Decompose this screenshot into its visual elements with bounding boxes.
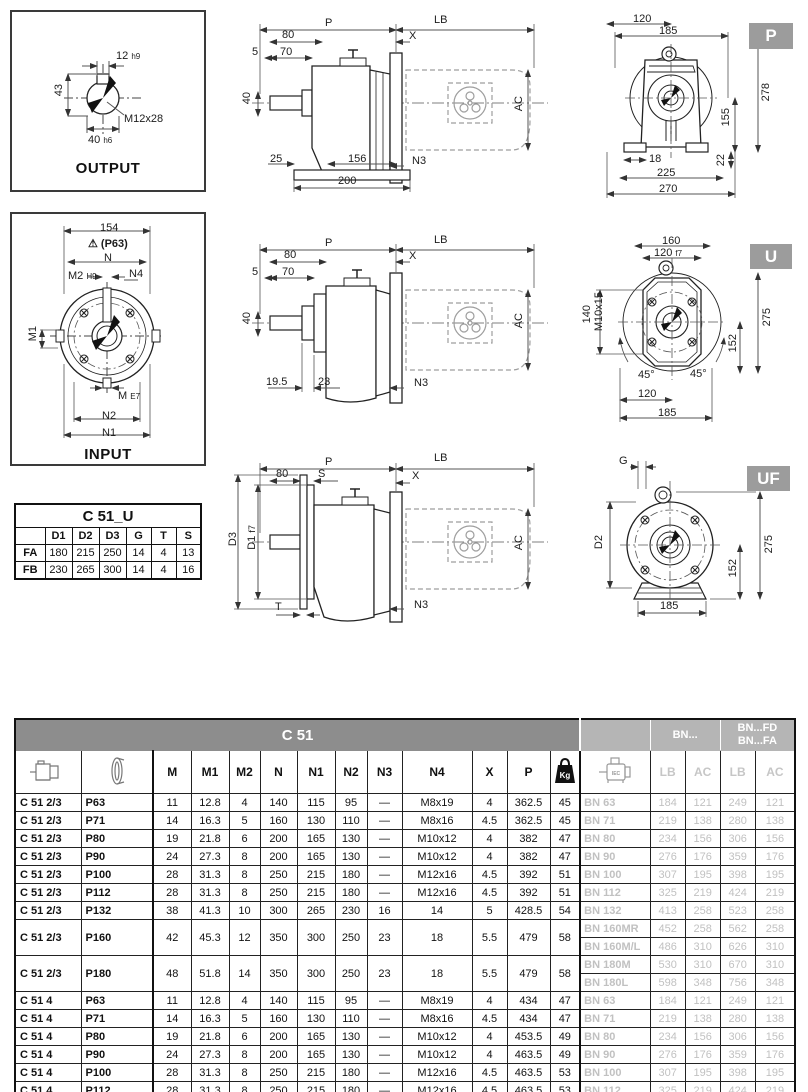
dim-p: P: [325, 238, 332, 249]
table-cell: 4: [472, 1028, 507, 1046]
table-cell: 115: [297, 794, 335, 812]
table-cell: 5: [472, 902, 507, 920]
col-header-n4: N4: [402, 751, 472, 794]
table-cell: BN 63: [580, 794, 650, 812]
table-cell: BN 100: [580, 866, 650, 884]
table-cell: M12x16: [402, 884, 472, 902]
table-cell: 110: [335, 812, 367, 830]
table-cell: 362.5: [507, 794, 550, 812]
table-cell: 306: [720, 830, 755, 848]
table-cell: 14: [402, 902, 472, 920]
table-cell: 130: [297, 812, 335, 830]
table-cell: 200: [260, 848, 297, 866]
table-cell: 49: [550, 1046, 580, 1064]
table-cell: 325: [650, 884, 685, 902]
dim-thread: M12x28: [124, 114, 163, 125]
col-header-m2: M2: [229, 751, 260, 794]
table-cell: 31.3: [191, 884, 229, 902]
table-cell: 180: [335, 1064, 367, 1082]
iec-motor-icon: IEC: [580, 751, 650, 794]
dim-80: 80: [284, 250, 296, 261]
table-cell: 130: [335, 1046, 367, 1064]
table-cell: 215: [297, 1082, 335, 1092]
table-cell: 434: [507, 1010, 550, 1028]
svg-text:IEC: IEC: [612, 771, 621, 777]
dim-140: 140: [582, 305, 593, 323]
table-cell: P80: [81, 1028, 153, 1046]
table-cell: 180: [335, 1082, 367, 1092]
table-cell: 12.8: [191, 794, 229, 812]
table-cell: 18: [402, 920, 472, 956]
output-caption: OUTPUT: [12, 160, 204, 177]
table-cell: 307: [650, 866, 685, 884]
table-cell: 258: [685, 902, 720, 920]
table-row: C 51 4P631112.8414011595—M8x19443447BN 6…: [15, 992, 795, 1010]
table-cell: 258: [755, 920, 795, 938]
table-cell: C 51 4: [15, 1064, 81, 1082]
col-header-n3: N3: [367, 751, 402, 794]
table-row: C 51 2/3P631112.8414011595—M8x194362.545…: [15, 794, 795, 812]
table-cell: C 51 2/3: [15, 866, 81, 884]
table-cell: 176: [755, 848, 795, 866]
table-cell: 424: [720, 884, 755, 902]
table-cell: 562: [720, 920, 755, 938]
table-cell: 53: [550, 1082, 580, 1092]
dim-keyway: 12 h9: [116, 51, 140, 62]
table-cell: 4.5: [472, 866, 507, 884]
table-cell: 176: [685, 1046, 720, 1064]
table-cell: 14: [229, 956, 260, 992]
table-cell: 14: [153, 812, 191, 830]
table-cell: 219: [650, 1010, 685, 1028]
table-cell: 250: [260, 1064, 297, 1082]
tab-u-version: U: [750, 244, 792, 269]
table-cell: 4.5: [472, 1082, 507, 1092]
table-cell: 138: [755, 1010, 795, 1028]
table-cell: 115: [297, 992, 335, 1010]
table-cell: 8: [229, 866, 260, 884]
dim-22: 22: [716, 154, 727, 166]
table-cell: 41.3: [191, 902, 229, 920]
warning-triangle-icon: ⚠ (P63): [88, 239, 128, 250]
catalog-page: 12 h9 43 M12x28 40 h6 OUTPUT: [0, 0, 808, 1092]
table-cell: P100: [81, 1064, 153, 1082]
table-cell: 184: [650, 992, 685, 1010]
table-cell: 300: [297, 920, 335, 956]
table-cell: 121: [755, 992, 795, 1010]
sub-header-ac2: AC: [755, 751, 795, 794]
table-cell: 200: [260, 1028, 297, 1046]
col-header: D3: [99, 528, 126, 545]
table-cell: 250: [260, 1082, 297, 1092]
table-cell: 11: [153, 794, 191, 812]
dim-g: G: [619, 456, 628, 467]
table-cell: 10: [229, 902, 260, 920]
dim-185: 185: [658, 408, 676, 419]
table-cell: 165: [297, 1028, 335, 1046]
table-cell: —: [367, 830, 402, 848]
table-cell: C 51 4: [15, 1082, 81, 1092]
table-cell: 234: [650, 830, 685, 848]
table-cell: 16: [367, 902, 402, 920]
dim-d1: D1 f7: [247, 525, 258, 550]
col-header: S: [176, 528, 201, 545]
table-cell: 16.3: [191, 1010, 229, 1028]
table-cell: 138: [685, 1010, 720, 1028]
table-cell: 180: [335, 866, 367, 884]
dim-200: 200: [338, 176, 356, 187]
dim-lb: LB: [434, 235, 447, 246]
table-cell: 280: [720, 812, 755, 830]
table-cell: BN 132: [580, 902, 650, 920]
table-row: C 51 2/3P1122831.38250215180—M12x164.539…: [15, 884, 795, 902]
table-cell: 359: [720, 1046, 755, 1064]
table-cell: 195: [685, 866, 720, 884]
table-cell: 160: [260, 812, 297, 830]
table-cell: M8x19: [402, 794, 472, 812]
table-cell: 215: [72, 545, 99, 562]
table-cell: 195: [755, 1064, 795, 1082]
table-cell: M10x12: [402, 848, 472, 866]
table-title: C 51: [15, 719, 580, 751]
table-cell: 463.5: [507, 1064, 550, 1082]
table-cell: P112: [81, 884, 153, 902]
table-cell: 325: [650, 1082, 685, 1092]
sub-header-lb: LB: [650, 751, 685, 794]
bn-header: BN...: [650, 719, 720, 751]
table-cell: 28: [153, 866, 191, 884]
table-cell: 95: [335, 992, 367, 1010]
table-cell: 4: [229, 794, 260, 812]
col-header-m: M: [153, 751, 191, 794]
dim-m1: M1: [28, 326, 39, 341]
table-cell: 24: [153, 1046, 191, 1064]
table-cell: 47: [550, 830, 580, 848]
dim-120f7: 120 f7: [654, 248, 682, 259]
table-cell: 4.5: [472, 1010, 507, 1028]
table-cell: 8: [229, 848, 260, 866]
table-cell: 219: [650, 812, 685, 830]
dim-p: P: [325, 457, 332, 468]
dim-n4: N4: [129, 269, 143, 280]
input-drawing: 154 ⚠ (P63) N M2 H9 N4 M1 M E7 N2 N1 INP…: [10, 212, 206, 466]
dim-n3: N3: [412, 156, 426, 167]
table-cell: 215: [297, 1064, 335, 1082]
dim-m2: M2 H9: [68, 271, 97, 282]
table-cell: 250: [260, 884, 297, 902]
dim-40: 40: [242, 92, 253, 104]
table-cell: P132: [81, 902, 153, 920]
table-cell: 4.5: [472, 812, 507, 830]
dim-19-5: 19.5: [266, 377, 287, 388]
table-cell: 230: [45, 562, 72, 580]
table-cell: P90: [81, 1046, 153, 1064]
table-cell: 16.3: [191, 812, 229, 830]
dim-70: 70: [282, 267, 294, 278]
table-cell: 219: [755, 884, 795, 902]
dim-25: 25: [270, 154, 282, 165]
table-cell: 8: [229, 1046, 260, 1064]
dim-me7: M E7: [118, 391, 140, 402]
table-cell: [15, 528, 45, 545]
table-cell: 5.5: [472, 920, 507, 956]
table-cell: 140: [260, 992, 297, 1010]
table-cell: 348: [755, 974, 795, 992]
table-row: C 51 2/3P902427.38200165130—M10x12438247…: [15, 848, 795, 866]
table-cell: P160: [81, 920, 153, 956]
table-cell: 300: [260, 902, 297, 920]
table-row: C 51 2/3P1323841.31030026523016145428.55…: [15, 902, 795, 920]
dim-n2: N2: [102, 411, 116, 422]
table-cell: 23: [367, 920, 402, 956]
table-cell: 479: [507, 956, 550, 992]
table-row: C 51 4P902427.38200165130—M10x124463.549…: [15, 1046, 795, 1064]
table-cell: —: [367, 794, 402, 812]
table-cell: 130: [335, 830, 367, 848]
table-cell: 195: [755, 866, 795, 884]
table-cell: 4: [472, 794, 507, 812]
table-cell: BN 180M: [580, 956, 650, 974]
table-cell: C 51 2/3: [15, 920, 81, 956]
table-cell: P180: [81, 956, 153, 992]
table-cell: M12x16: [402, 866, 472, 884]
table-cell: 23: [367, 956, 402, 992]
table-cell: 300: [297, 956, 335, 992]
table-cell: 523: [720, 902, 755, 920]
gearmotor-icon: [15, 751, 81, 794]
table-cell: BN 63: [580, 992, 650, 1010]
table-body: C 51 2/3P631112.8414011595—M8x194362.545…: [15, 794, 795, 1092]
table-cell: C 51 2/3: [15, 830, 81, 848]
dim-n: N: [104, 253, 112, 264]
table-cell: BN 112: [580, 884, 650, 902]
table-row: C 51 4P1002831.38250215180—M12x164.5463.…: [15, 1064, 795, 1082]
table-cell: 413: [650, 902, 685, 920]
table-cell: 5: [229, 1010, 260, 1028]
dim-45-left: 45°: [638, 370, 655, 381]
table-cell: 249: [720, 794, 755, 812]
table-cell: 424: [720, 1082, 755, 1092]
dim-270: 270: [659, 184, 677, 195]
table-cell: 350: [260, 956, 297, 992]
table-cell: M10x12: [402, 1028, 472, 1046]
table-cell: 250: [335, 920, 367, 956]
table-cell: C 51 4: [15, 1010, 81, 1028]
table-cell: 156: [755, 1028, 795, 1046]
side-view-u: P LB X 80 5 70 40 19.5 23 N3 AC: [228, 228, 560, 438]
table-cell: 382: [507, 830, 550, 848]
table-cell: C 51 2/3: [15, 956, 81, 992]
table-cell: 215: [297, 884, 335, 902]
table-cell: 310: [685, 956, 720, 974]
table-cell: 258: [755, 902, 795, 920]
table-row: C 51 2/3P711416.35160130110—M8x164.5362.…: [15, 812, 795, 830]
table-cell: 463.5: [507, 1082, 550, 1092]
table-cell: 21.8: [191, 830, 229, 848]
table-cell: 47: [550, 848, 580, 866]
table-cell: BN 80: [580, 1028, 650, 1046]
table-cell: C 51 4: [15, 992, 81, 1010]
table-cell: 362.5: [507, 812, 550, 830]
table-cell: BN 180L: [580, 974, 650, 992]
table-row: C 51 4P711416.35160130110—M8x164.543447B…: [15, 1010, 795, 1028]
table-cell: C 51 2/3: [15, 848, 81, 866]
table-cell: 130: [335, 848, 367, 866]
table-cell: 756: [720, 974, 755, 992]
table-cell: C 51 4: [15, 1046, 81, 1064]
table-cell: 348: [685, 974, 720, 992]
table-cell: BN 100: [580, 1064, 650, 1082]
table-cell: 31.3: [191, 1082, 229, 1092]
dim-s: S: [318, 469, 325, 480]
table-cell: P63: [81, 794, 153, 812]
col-header: T: [151, 528, 176, 545]
table-cell: 4: [472, 848, 507, 866]
table-cell: 8: [229, 1082, 260, 1092]
table-cell: —: [367, 1046, 402, 1064]
dim-152: 152: [728, 559, 739, 577]
table-cell: 4.5: [472, 884, 507, 902]
table-cell: 4: [151, 562, 176, 580]
table-cell: M10x12: [402, 830, 472, 848]
table-cell: 58: [550, 920, 580, 956]
table-cell: 27.3: [191, 848, 229, 866]
dim-275: 275: [762, 308, 773, 326]
table-cell: —: [367, 848, 402, 866]
table-cell: 45: [550, 812, 580, 830]
dim-80: 80: [276, 469, 288, 480]
table-cell: 28: [153, 1064, 191, 1082]
table-cell: 48: [153, 956, 191, 992]
table-cell: 47: [550, 992, 580, 1010]
table-cell: C 51 2/3: [15, 902, 81, 920]
table-cell: BN 90: [580, 1046, 650, 1064]
col-header-n2: N2: [335, 751, 367, 794]
table-cell: 165: [297, 848, 335, 866]
dim-80: 80: [282, 30, 294, 41]
table-cell: 200: [260, 830, 297, 848]
table-cell: M8x16: [402, 812, 472, 830]
table-cell: 195: [685, 1064, 720, 1082]
table-cell: —: [367, 884, 402, 902]
dim-n3: N3: [414, 378, 428, 389]
table-cell: 51: [550, 884, 580, 902]
table-cell: P71: [81, 812, 153, 830]
table-cell: C 51 2/3: [15, 884, 81, 902]
dim-70: 70: [280, 47, 292, 58]
table-cell: —: [367, 1010, 402, 1028]
col-header-m1: M1: [191, 751, 229, 794]
dim-n1: N1: [102, 428, 116, 439]
sub-header-ac: AC: [685, 751, 720, 794]
table-cell: BN 160MR: [580, 920, 650, 938]
table-cell: 14: [126, 562, 151, 580]
table-cell: BN 90: [580, 848, 650, 866]
bnfd-header: BN...FDBN...FA: [720, 719, 795, 751]
table-cell: 121: [685, 992, 720, 1010]
table-cell: 382: [507, 848, 550, 866]
table-cell: 45.3: [191, 920, 229, 956]
table-cell: 249: [720, 992, 755, 1010]
col-header-p: P: [507, 751, 550, 794]
table-cell: 6: [229, 1028, 260, 1046]
table-cell: 28: [153, 1082, 191, 1092]
dim-ac: AC: [514, 313, 525, 328]
dim-x: X: [409, 251, 416, 262]
table-cell: 156: [755, 830, 795, 848]
dim-43: 43: [54, 84, 65, 96]
table-cell: BN 71: [580, 1010, 650, 1028]
table-cell: —: [367, 1064, 402, 1082]
table-cell: 19: [153, 830, 191, 848]
table-cell: 45: [550, 794, 580, 812]
dim-p: P: [325, 18, 332, 29]
sub-header-lb2: LB: [720, 751, 755, 794]
table-cell: 250: [99, 545, 126, 562]
dim-lb: LB: [434, 15, 447, 26]
table-cell: 486: [650, 938, 685, 956]
dim-23: 23: [318, 377, 330, 388]
input-caption: INPUT: [12, 446, 204, 463]
table-cell: P80: [81, 830, 153, 848]
table-cell: 626: [720, 938, 755, 956]
table-cell: 31.3: [191, 866, 229, 884]
table-cell: 130: [335, 1028, 367, 1046]
table-cell: 280: [720, 1010, 755, 1028]
table-cell: 176: [685, 848, 720, 866]
table-cell: 140: [260, 794, 297, 812]
table-cell: 121: [685, 794, 720, 812]
table-cell: 51: [550, 866, 580, 884]
table-cell: 4: [472, 830, 507, 848]
band-spacer: [580, 719, 650, 751]
table-cell: 54: [550, 902, 580, 920]
tab-p-version: P: [749, 23, 793, 49]
table-cell: 306: [720, 1028, 755, 1046]
table-row: C 51 2/3P1804851.81435030025023185.54795…: [15, 956, 795, 974]
table-cell: BN 160M/L: [580, 938, 650, 956]
row-label: FA: [15, 545, 45, 562]
tab-uf-version: UF: [747, 466, 790, 491]
table-cell: 16: [176, 562, 201, 580]
table-cell: 121: [755, 794, 795, 812]
table-cell: 53: [550, 1064, 580, 1082]
table-cell: P90: [81, 848, 153, 866]
table-cell: 58: [550, 956, 580, 992]
dim-d2: D2: [594, 535, 605, 549]
dim-t: T: [275, 602, 282, 613]
dim-m10x15: M10x15: [594, 292, 605, 331]
table-cell: 258: [685, 920, 720, 938]
table-cell: 434: [507, 992, 550, 1010]
dim-152: 152: [728, 334, 739, 352]
table-cell: 230: [335, 902, 367, 920]
col-header: D1: [45, 528, 72, 545]
dim-18: 18: [649, 154, 661, 165]
table-cell: 215: [297, 866, 335, 884]
table-cell: 51.8: [191, 956, 229, 992]
dim-x: X: [409, 31, 416, 42]
table-cell: C 51 2/3: [15, 794, 81, 812]
table-cell: 276: [650, 848, 685, 866]
table-cell: 14: [126, 545, 151, 562]
table-colhead-row: M M1 M2 N N1 N2 N3 N4 X P Kg IEC LB AC L…: [15, 751, 795, 794]
table-cell: —: [367, 992, 402, 1010]
table-row: C 51 2/3P1604245.31235030025023185.54795…: [15, 920, 795, 938]
table-cell: 95: [335, 794, 367, 812]
table-cell: 359: [720, 848, 755, 866]
table-cell: 138: [755, 812, 795, 830]
